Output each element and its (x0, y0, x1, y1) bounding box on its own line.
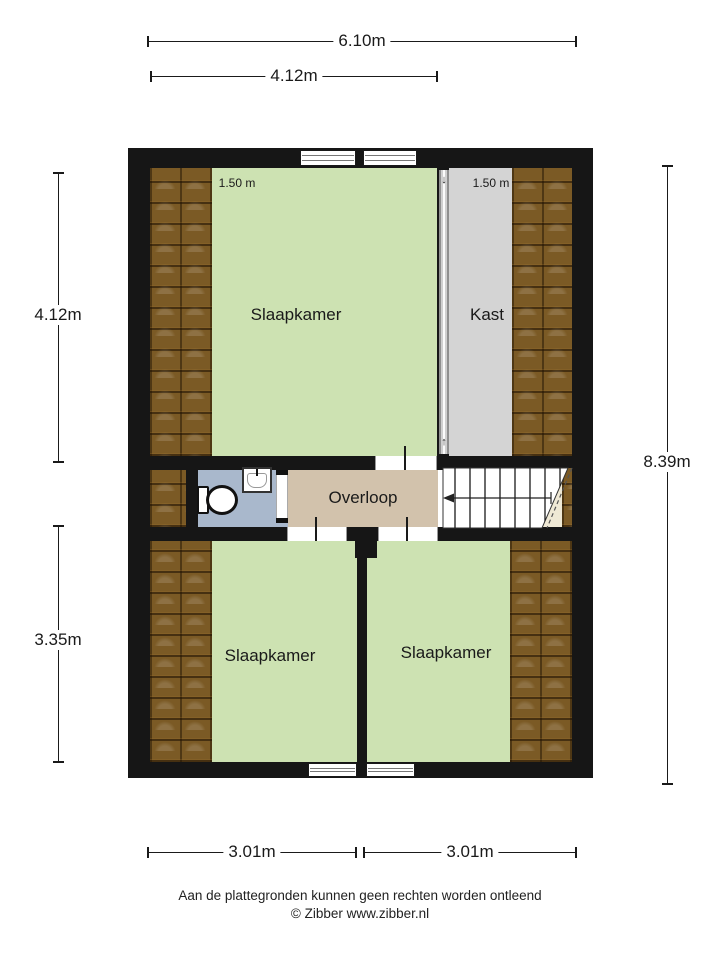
bedroom-top-label: Slaapkamer (251, 305, 342, 325)
roof-tiles-mid-left (150, 470, 186, 527)
headroom-label-left: 1.50 m (219, 176, 256, 190)
sliding-door-track (439, 170, 449, 454)
divider-wall-stub (355, 527, 377, 558)
bedroom-bottom-left-label: Slaapkamer (225, 646, 316, 666)
footer-copyright: © Zibber www.zibber.nl (0, 906, 720, 921)
window-bottom-right (366, 763, 415, 777)
door-opening-bottom-left-bedroom (287, 527, 347, 541)
dim-height-total: 8.39m (662, 165, 673, 785)
closet-label: Kast (470, 305, 504, 325)
door-opening-top-bedroom (375, 456, 437, 470)
dim-width-bottom-left: 3.01m (147, 847, 357, 858)
window-top-right (363, 150, 417, 166)
bedroom-bottom-right-label: Slaapkamer (401, 643, 492, 663)
dim-height-top-left: 4.12m (53, 172, 64, 463)
window-top-left (300, 150, 356, 166)
stairs (441, 466, 577, 530)
dim-label: 4.12m (29, 305, 86, 325)
dim-label: 6.10m (333, 31, 390, 51)
landing-label: Overloop (329, 488, 398, 508)
roof-tiles-top-left (150, 168, 212, 456)
roof-tiles-bottom-left (150, 541, 212, 762)
floorplan-page: 6.10m 4.12m 4.12m 3.35m 8.39m 3.01m 3.01… (0, 0, 720, 960)
bathroom-door (276, 470, 288, 523)
headroom-label-right: 1.50 m (473, 176, 510, 190)
dim-width-bottom-right: 3.01m (363, 847, 577, 858)
dim-label: 3.35m (29, 630, 86, 650)
sink (242, 467, 272, 493)
plan-outer-walls: ↓ ↑ (128, 148, 593, 778)
roof-tiles-bottom-right (510, 541, 572, 762)
dim-width-top-room: 4.12m (150, 71, 438, 82)
dim-height-bottom-left: 3.35m (53, 525, 64, 763)
slide-arrow-down-icon: ↓ (438, 174, 450, 186)
window-bottom-left (308, 763, 357, 777)
dim-label: 8.39m (638, 452, 695, 472)
dim-line (667, 165, 668, 785)
dim-label: 3.01m (441, 842, 498, 862)
dim-width-total: 6.10m (147, 36, 577, 47)
footer-disclaimer: Aan de plattegronden kunnen geen rechten… (0, 888, 720, 903)
slide-arrow-up-icon: ↑ (438, 436, 450, 448)
dim-label: 3.01m (223, 842, 280, 862)
door-opening-bottom-right-bedroom (378, 527, 438, 541)
dim-label: 4.12m (265, 66, 322, 86)
toilet-bowl (206, 485, 238, 515)
roof-tiles-top-right (512, 168, 572, 456)
